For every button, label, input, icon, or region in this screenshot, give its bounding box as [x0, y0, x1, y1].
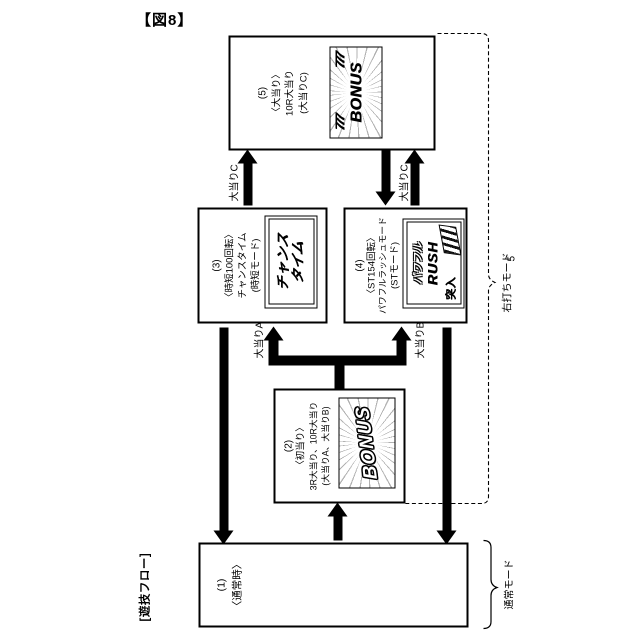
arrow-first-hit-to-rush: [396, 339, 406, 357]
arrow-chance-to-jackpot: [243, 163, 252, 205]
bonus-text: BONUS: [351, 406, 382, 479]
state-detail: 〈ST154回転〉: [366, 209, 378, 321]
display-screen-bonus-jackpot: 777 777 BONUS: [329, 46, 382, 138]
state-name: 〈初当り〉: [295, 390, 307, 501]
arrowhead: [436, 530, 456, 544]
game-flow-title: [遊技フロー]: [136, 552, 152, 621]
state-detail: (大当りC): [297, 37, 311, 148]
arrowhead: [375, 191, 395, 205]
game-flow-diagram: [遊技フロー] (1) 〈通常時〉 (2) 〈初当り〉 3R大当り、10R大当り…: [145, 27, 520, 637]
state-detail: 10R大当り: [283, 37, 297, 148]
arrowhead: [404, 149, 424, 163]
state-detail: (大当りA、大当りB): [319, 390, 331, 501]
arrow-jackpot-to-rush: [381, 150, 390, 191]
state-box-chance-time: (3) 〈時短100回転〉 チャンスタイム (時短モード) チャンス タイム 5: [197, 207, 327, 323]
arrow-label-jackpot-c: 大当りC: [395, 164, 410, 201]
state-detail: (STモード): [389, 209, 401, 321]
mode-label-right-strike: 右打ちモード: [498, 252, 513, 312]
arrow-label-jackpot-b: 大当りB: [411, 321, 426, 358]
road-graphic: [438, 224, 461, 255]
state-box-normal: (1) 〈通常時〉: [198, 542, 468, 627]
state-number: (3): [210, 209, 223, 321]
bonus-text: BONUS: [348, 47, 366, 137]
arrow-rush-to-normal: [442, 327, 451, 531]
state-detail: (時短モード): [249, 209, 262, 321]
arrowhead: [327, 502, 347, 516]
arrow-normal-to-first-hit: [333, 514, 342, 540]
state-box-jackpot: (5) 〈大当り〉 10R大当り (大当りC) 777 777 BONUS 5: [228, 35, 435, 150]
rush-text: RUSH: [425, 241, 439, 285]
arrow-first-hit-to-chance: [268, 339, 278, 357]
state-number: (4): [354, 209, 366, 321]
powerful-text: パワフル: [410, 242, 425, 284]
screen-bezel: チャンス タイム: [268, 219, 314, 305]
normal-mode-brace: [483, 540, 497, 628]
triple-seven-right: 777: [332, 53, 347, 69]
mode-label-normal: 通常モード: [500, 559, 515, 609]
state-box-first-hit: (2) 〈初当り〉 3R大当り、10R大当り (大当りA、大当りB) BONUS…: [273, 388, 405, 503]
display-screen-powerful-rush: パワフル RUSH 突入: [402, 218, 464, 308]
arrow-label-jackpot-c: 大当りC: [225, 164, 240, 201]
arrowhead: [391, 326, 411, 340]
sevens-row: 777 777: [330, 47, 347, 137]
time-text: タイム: [291, 238, 306, 284]
entry-text: 突入: [442, 277, 458, 300]
state-name: 〈通常時〉: [229, 544, 245, 625]
arrow-first-hit-split-bar: [268, 355, 406, 365]
state-detail: 〈時短100回転〉: [223, 209, 236, 321]
arrow-rush-to-jackpot: [410, 163, 419, 205]
display-screen-bonus-first-hit: BONUS: [338, 397, 395, 488]
arrowhead: [237, 149, 257, 163]
state-name: 〈大当り〉: [270, 37, 284, 148]
arrow-label-jackpot-a: 大当りA: [250, 321, 265, 358]
display-screen-chance-time: チャンス タイム: [264, 215, 317, 308]
screen-bezel: パワフル RUSH 突入: [406, 222, 461, 305]
arrowhead: [263, 326, 283, 340]
state-number: (1): [213, 544, 229, 625]
state-name: パワフルラッシュモード: [377, 209, 389, 321]
arrow-chance-to-normal: [219, 327, 228, 531]
state-detail: 3R大当り、10R大当り: [307, 390, 319, 501]
state-number: (5): [256, 37, 270, 148]
chance-text: チャンス: [276, 231, 291, 292]
state-name: チャンスタイム: [236, 209, 249, 321]
triple-seven-left: 777: [332, 115, 347, 131]
arrowhead: [213, 530, 233, 544]
state-box-powerful-rush: (4) 〈ST154回転〉 パワフルラッシュモード (STモード) パワフル R…: [343, 207, 467, 323]
state-number: (2): [283, 390, 295, 501]
